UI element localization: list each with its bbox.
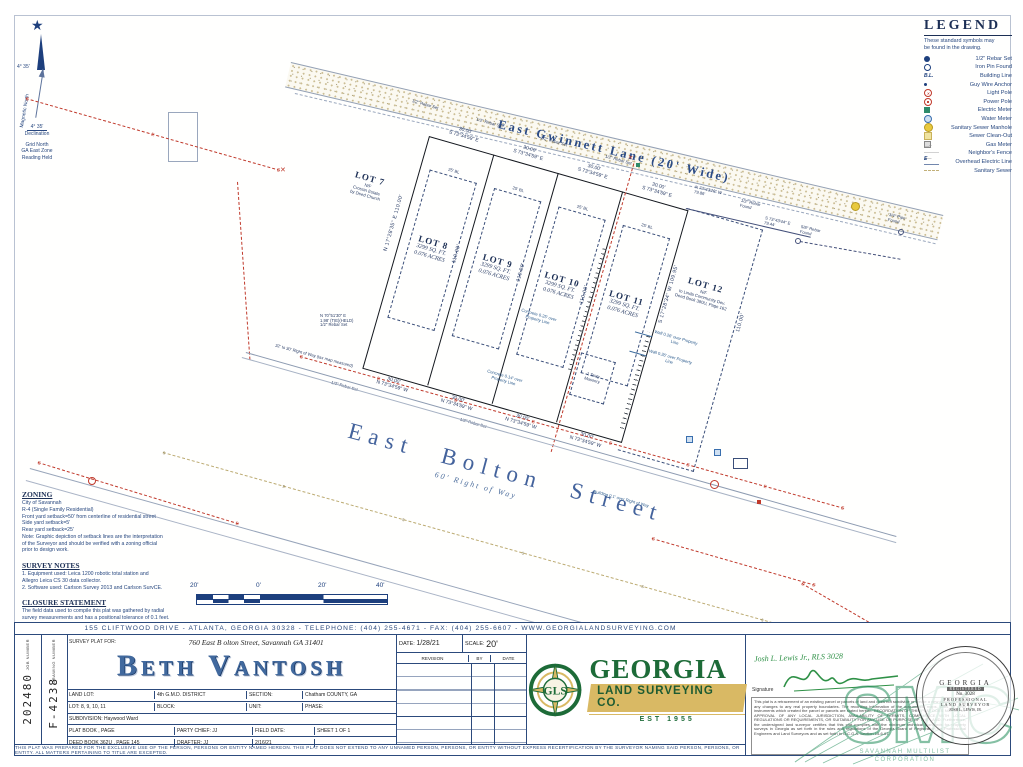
watermark-caption: CORPORATION: [875, 757, 936, 763]
grid-north-arrow-icon: [37, 34, 45, 70]
tie-note: N 70°51'30" E 1.98' (TIE)(HELD) 1/2" Reb…: [320, 314, 362, 328]
blank-detail-box: [168, 112, 198, 162]
county-value: Chatham COUNTY, GA: [303, 691, 396, 699]
scale-label: SCALE:: [465, 641, 485, 647]
water-meter-symbol: [714, 449, 721, 456]
building-line-icon: B.L.: [924, 73, 933, 79]
legend-subtitle: These standard symbols maybe found in th…: [924, 38, 1012, 52]
legend-label: Light Pole: [940, 90, 1012, 96]
logo-est: EST 1955: [589, 714, 745, 723]
watermark-caption: SAVANNAH MULTILIST: [859, 749, 950, 755]
power-pole-symbol: [88, 477, 96, 485]
svg-text:GLS: GLS: [544, 684, 567, 697]
compass-logo-icon: GLS: [527, 661, 583, 719]
declination-caption: 4° 35' Declination: [14, 124, 60, 138]
job-number-cell: JOB NUMBER 202480: [15, 635, 42, 744]
drawing-number-cell: DRAWING NUMBER F-4238: [41, 635, 68, 744]
power-pole-symbol: ✕: [280, 166, 286, 174]
legend-label: Sewer Clean-Out: [940, 133, 1012, 139]
surveyor-seal: GEORGIA REGISTERED No. 3028 PROFESSIONAL…: [916, 646, 1015, 745]
field-date-label: FIELD DATE:: [253, 727, 315, 735]
section-label: SECTION:: [247, 691, 303, 699]
porch-outline: [733, 458, 748, 469]
sheet-value: SHEET 1 OF 1: [315, 727, 396, 735]
lot-value: LOT: 8, 9, 10, 11: [67, 703, 155, 711]
date-value: 1/28/21: [416, 640, 439, 647]
revision-header: REVISION: [397, 655, 469, 662]
signature-label: Signature: [752, 687, 773, 693]
disclaimer-text: THIS PLAT WAS PREPARED FOR THE EXCLUSIVE…: [15, 745, 745, 755]
legend-label: Electric Meter: [940, 107, 1012, 113]
phase-label: PHASE:: [303, 703, 396, 711]
power-pole-symbol: [710, 480, 719, 489]
revision-panel: DATE: 1/28/21 SCALE: 20' REVISION BY DAT…: [397, 635, 527, 744]
legend-title: LEGEND: [924, 18, 1012, 34]
scale-bar: [196, 594, 388, 605]
survey-notes: SURVEY NOTES 1. Equipment used: Leica 12…: [22, 561, 214, 591]
notes-block: ZONING City of Savannah R-4 (Single Fami…: [22, 490, 214, 642]
legend-label: Gas Meter: [940, 142, 1012, 148]
light-pole-icon: ✕: [924, 89, 932, 97]
legend-label: Sanitary Sewer: [940, 168, 1012, 174]
monument-symbol: [898, 229, 904, 235]
revision-rows: [397, 664, 526, 745]
logo-name: GEORGIA: [589, 656, 745, 683]
firm-address-banner: 155 CLIFTWOOD DRIVE - ATLANTA, GEORGIA 3…: [15, 623, 1010, 635]
water-meter-symbol: [686, 436, 693, 443]
site-address: 760 East B olton Street, Savannah GA 314…: [116, 638, 396, 647]
zoning-notes: ZONING City of Savannah R-4 (Single Fami…: [22, 490, 214, 554]
legend-label: Power Pole: [940, 99, 1012, 105]
legend: LEGEND These standard symbols maybe foun…: [924, 18, 1012, 175]
legend-label: Water Meter: [940, 116, 1012, 122]
water-meter-icon: [924, 115, 932, 123]
party-chief-value: PARTY CHIEF: JJ: [175, 727, 253, 735]
survey-plat-for-label: SURVEY PLAT FOR:: [67, 639, 116, 645]
sewer-manhole-symbol: [851, 202, 860, 211]
declination-angle: 4° 35': [17, 64, 30, 70]
scale-value: 20': [486, 639, 498, 649]
date-header: DATE: [491, 655, 526, 662]
block-label: BLOCK:: [155, 703, 247, 711]
grid-north-note: Grid North GA East Zone Reading Held: [14, 142, 60, 161]
electric-meter-icon: [924, 107, 930, 113]
plat-book-label: PLAT BOOK , PAGE: [67, 727, 175, 735]
subdivision-value: SUBDIVISION: Haywood Ward: [67, 715, 396, 723]
monument-symbol: [795, 238, 801, 244]
by-header: BY: [469, 655, 491, 662]
utility-symbol: [757, 500, 761, 504]
legend-label: Overhead Electric Line: [940, 159, 1012, 165]
overhead-electric-line-icon: E ———: [924, 156, 940, 168]
rebar-set-icon: [924, 56, 930, 62]
legend-label: Sanitary Sewer Manhole: [940, 125, 1012, 131]
legend-label: Guy Wire Anchor: [940, 82, 1012, 88]
sanitary-sewer-manhole-icon: [924, 123, 933, 132]
firm-logo: GLS GEORGIA LAND SURVEYING CO. EST 1955: [527, 635, 746, 744]
guy-wire-anchor-icon: [924, 83, 927, 86]
land-lot-label: LAND LOT:: [67, 691, 155, 699]
district-value: 4th G.M.D. DISTRICT: [155, 691, 247, 699]
legend-label: 1/2" Rebar Set: [940, 56, 1012, 62]
logo-subname: LAND SURVEYING CO.: [597, 685, 737, 709]
client-panel: SURVEY PLAT FOR: 760 East B olton Street…: [67, 635, 397, 744]
date-label: DATE:: [399, 641, 415, 647]
sewer-clean-out-icon: [924, 132, 932, 140]
unit-label: UNIT:: [247, 703, 303, 711]
power-pole-icon: [924, 98, 932, 106]
north-star-icon: ★: [31, 17, 44, 34]
electric-meter-symbol: [636, 163, 640, 167]
iron-pin-found-icon: [924, 64, 931, 71]
legend-label: Neighbor's Fence: [940, 150, 1012, 156]
legend-label: Building Line: [940, 73, 1012, 79]
sanitary-sewer-icon: [924, 170, 939, 171]
legend-label: Iron Pin Found: [940, 64, 1012, 70]
client-name: Beth Vantosh: [67, 649, 396, 689]
